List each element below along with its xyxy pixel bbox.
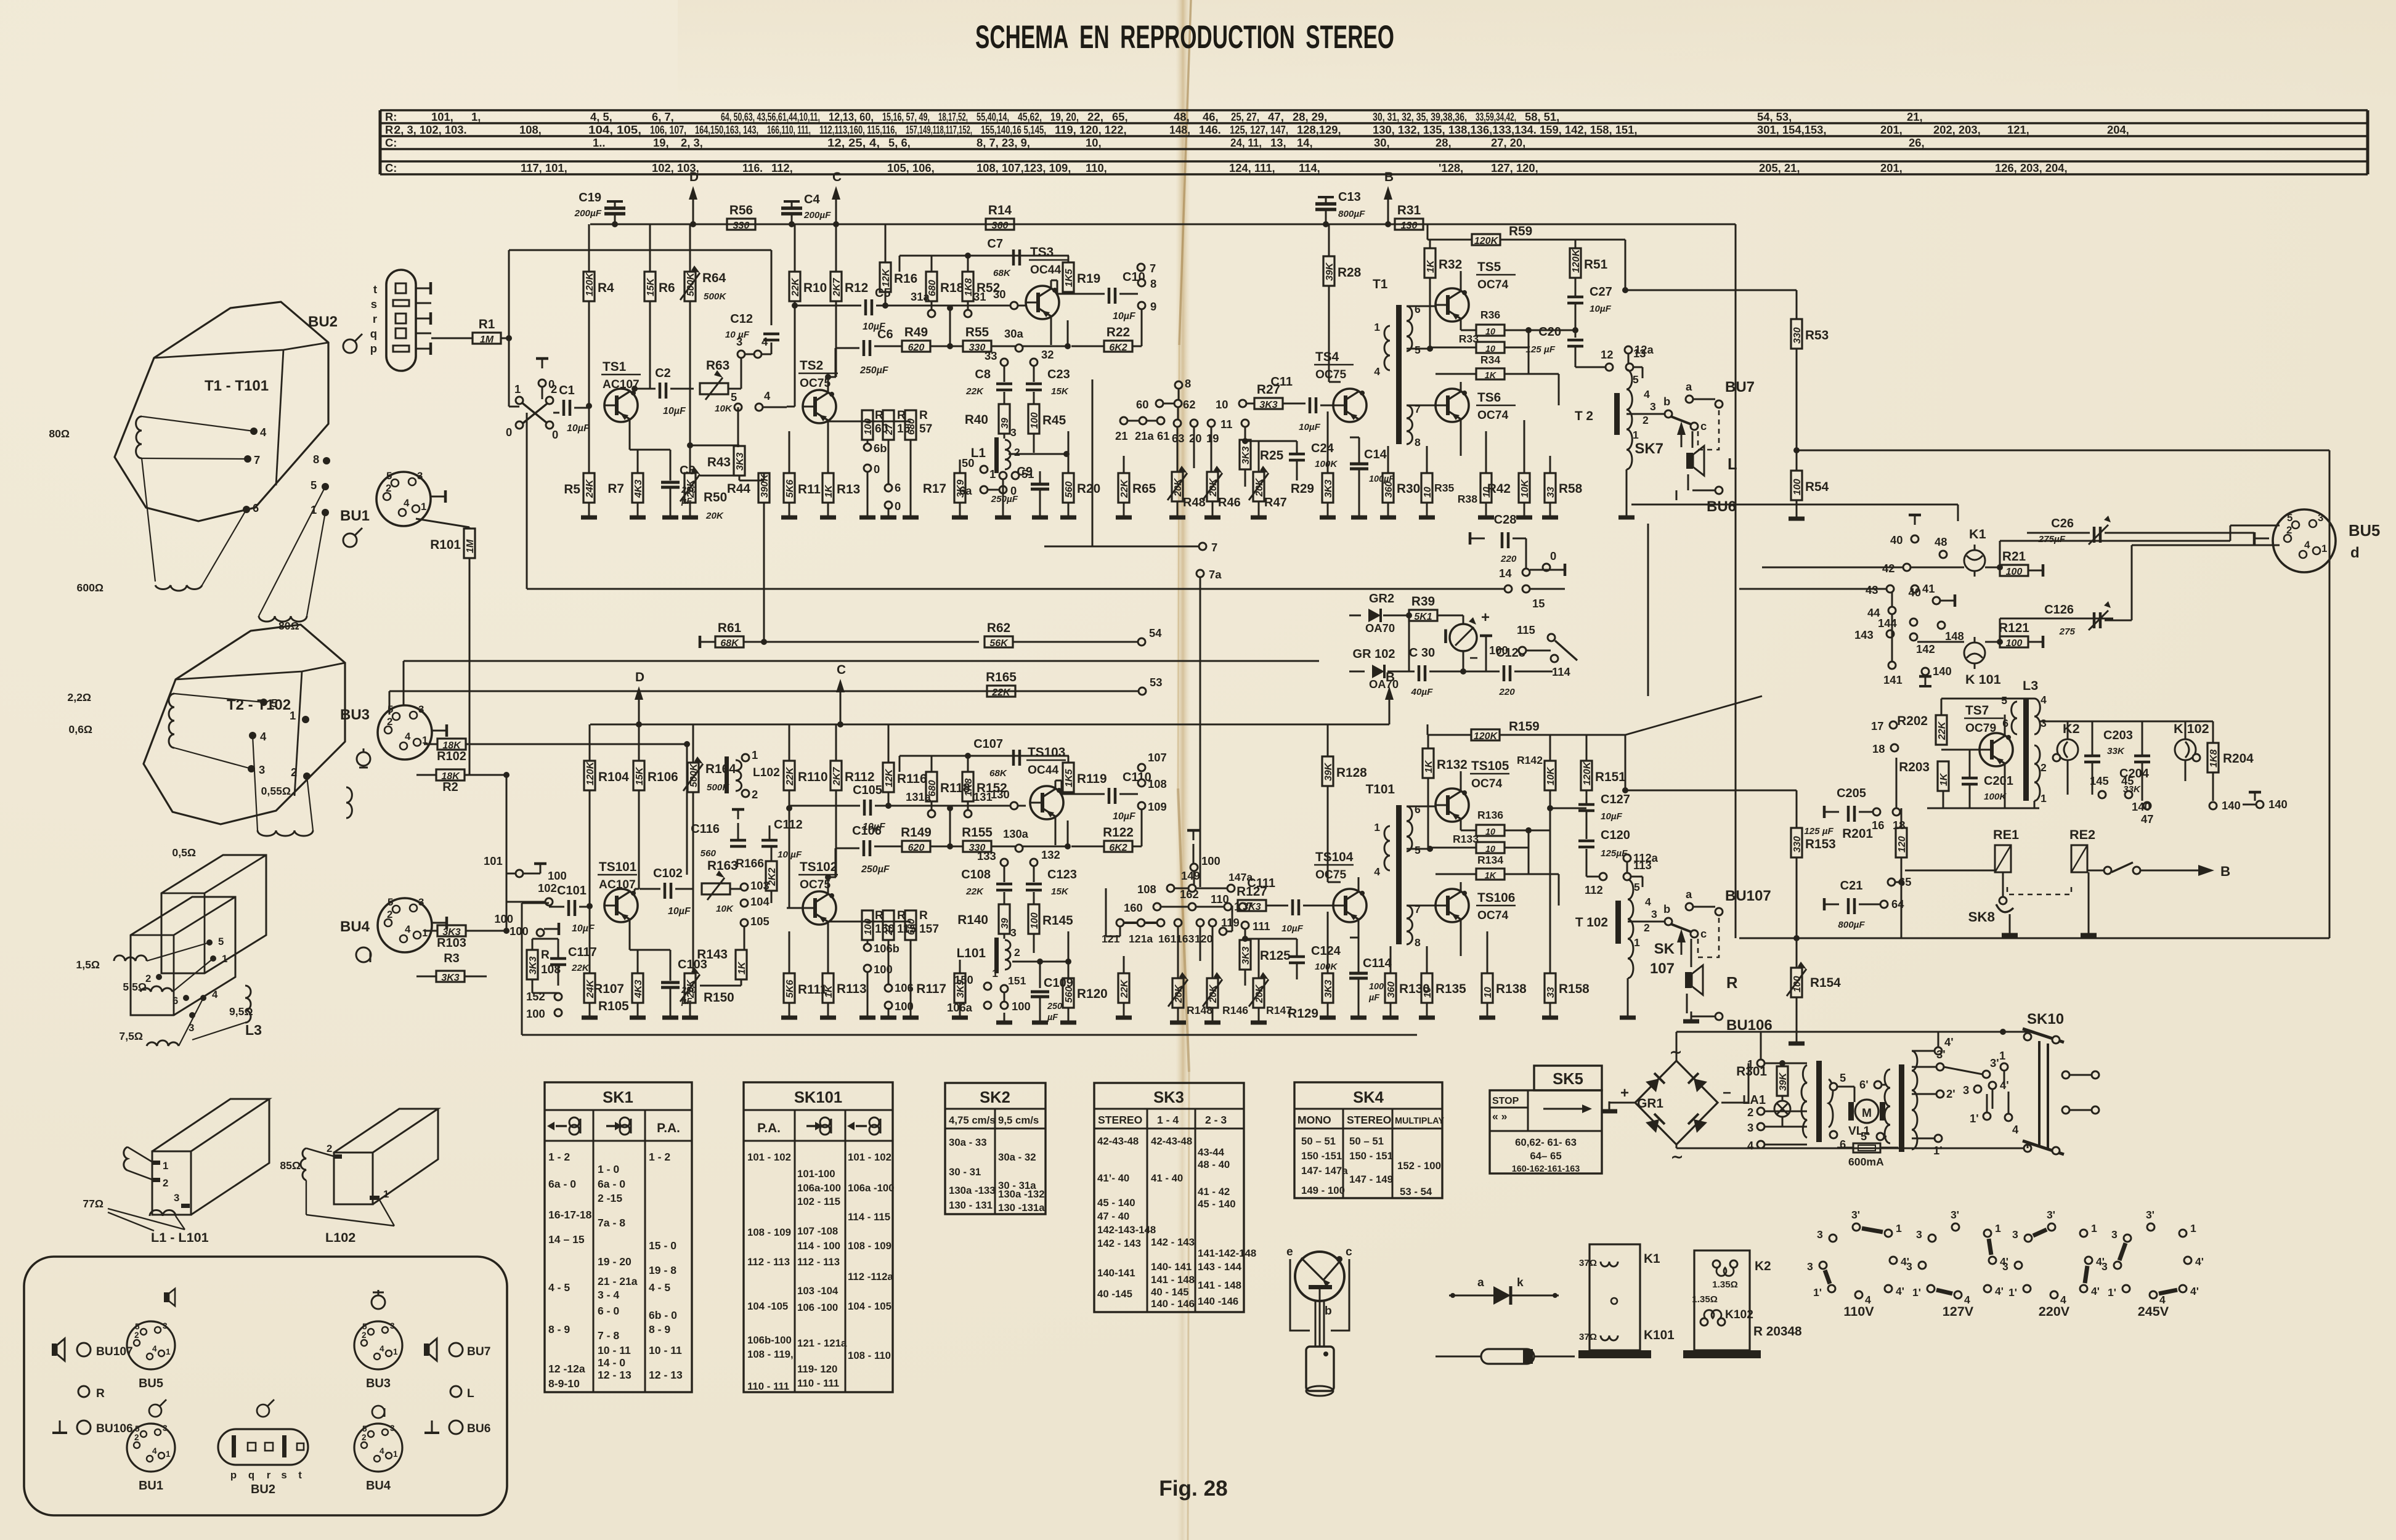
svg-text:152 - 100: 152 - 100 <box>1397 1160 1441 1172</box>
svg-text:C21: C21 <box>1840 879 1863 893</box>
svg-text:R:: R: <box>385 110 397 123</box>
svg-text:6b: 6b <box>874 442 887 455</box>
svg-text:68K: 68K <box>989 768 1007 779</box>
svg-text:33K: 33K <box>2107 746 2125 756</box>
svg-text:107 -108: 107 -108 <box>797 1225 838 1237</box>
svg-text:1: 1 <box>1374 821 1380 833</box>
svg-text:R48: R48 <box>1183 496 1206 509</box>
svg-text:1': 1' <box>2108 1286 2116 1299</box>
svg-text:4: 4 <box>212 989 218 1000</box>
svg-text:R1: R1 <box>479 317 495 331</box>
svg-text:C8: C8 <box>975 368 991 381</box>
svg-text:2: 2 <box>134 1331 139 1340</box>
svg-text:R28: R28 <box>1338 265 1361 280</box>
svg-text:R134: R134 <box>1477 854 1503 866</box>
svg-text:40: 40 <box>1909 586 1921 599</box>
svg-text:112 - 113: 112 - 113 <box>747 1256 790 1268</box>
svg-text:108 - 119,: 108 - 119, <box>747 1348 794 1360</box>
svg-text:2: 2 <box>1747 1106 1753 1119</box>
svg-text:4: 4 <box>1374 365 1380 378</box>
svg-text:R51: R51 <box>1584 257 1607 272</box>
svg-text:1 - 2: 1 - 2 <box>548 1151 570 1163</box>
svg-text:127, 120,: 127, 120, <box>1491 161 1538 174</box>
svg-text:R17: R17 <box>923 482 946 496</box>
svg-text:2: 2 <box>386 482 391 494</box>
svg-text:1..: 1.. <box>593 136 605 149</box>
svg-text:R110: R110 <box>798 770 828 784</box>
svg-text:R32: R32 <box>1439 257 1462 272</box>
svg-text:P.A.: P.A. <box>657 1121 680 1135</box>
svg-text:SK1: SK1 <box>603 1089 633 1106</box>
svg-text:R106: R106 <box>648 770 678 784</box>
svg-text:30a - 33: 30a - 33 <box>949 1137 987 1148</box>
svg-text:106a -100: 106a -100 <box>848 1182 895 1194</box>
svg-text:BU7: BU7 <box>467 1345 490 1358</box>
svg-text:4: 4 <box>1644 388 1650 400</box>
svg-text:R143: R143 <box>697 947 728 962</box>
svg-text:C:: C: <box>385 161 397 174</box>
svg-text:107: 107 <box>1148 751 1167 764</box>
svg-text:C27: C27 <box>1590 285 1612 299</box>
svg-text:K 102: K 102 <box>2174 721 2209 736</box>
svg-text:3: 3 <box>2002 1260 2008 1273</box>
svg-text:42-43-48: 42-43-48 <box>1151 1135 1192 1147</box>
svg-text:147 - 149: 147 - 149 <box>1349 1173 1393 1185</box>
svg-text:R30: R30 <box>1397 482 1420 496</box>
svg-text:142-143-148: 142-143-148 <box>1097 1224 1156 1236</box>
svg-text:3: 3 <box>1650 400 1656 413</box>
svg-text:2 - 3: 2 - 3 <box>1205 1114 1227 1126</box>
svg-text:SK8: SK8 <box>1968 909 1995 925</box>
svg-text:6: 6 <box>895 481 901 494</box>
svg-text:27: 27 <box>884 923 895 936</box>
svg-text:104: 104 <box>750 895 770 908</box>
svg-text:3: 3 <box>418 896 424 908</box>
svg-text:9,5 cm/s: 9,5 cm/s <box>998 1114 1039 1126</box>
svg-text:4: 4 <box>152 1344 157 1353</box>
svg-text:C120: C120 <box>1601 829 1630 842</box>
svg-text:1: 1 <box>752 748 758 761</box>
svg-text:D: D <box>689 170 699 184</box>
svg-text:19,: 19, <box>653 136 669 149</box>
svg-text:45,62,: 45,62, <box>1018 110 1042 123</box>
svg-text:131: 131 <box>973 790 993 803</box>
svg-text:R121: R121 <box>1999 621 2029 635</box>
svg-text:12 - 13: 12 - 13 <box>649 1369 683 1381</box>
svg-text:STEREO: STEREO <box>1098 1114 1142 1126</box>
svg-text:140-141: 140-141 <box>1097 1267 1135 1279</box>
svg-text:48 - 40: 48 - 40 <box>1198 1159 1230 1170</box>
svg-text:10: 10 <box>1485 845 1495 854</box>
svg-text:33: 33 <box>985 349 997 362</box>
svg-text:26,: 26, <box>1909 136 1925 149</box>
svg-text:C2: C2 <box>655 367 671 380</box>
svg-text:120: 120 <box>1195 933 1213 945</box>
svg-text:54: 54 <box>1149 626 1162 639</box>
svg-text:4K3: 4K3 <box>633 980 644 999</box>
svg-text:K102: K102 <box>1725 1308 1753 1321</box>
svg-text:6K2: 6K2 <box>1109 342 1127 353</box>
svg-text:C102: C102 <box>653 867 683 880</box>
svg-text:100: 100 <box>1012 1000 1031 1013</box>
svg-text:R63: R63 <box>706 359 729 373</box>
svg-text:OC74: OC74 <box>1477 409 1508 422</box>
svg-text:101 - 102: 101 - 102 <box>848 1151 891 1163</box>
svg-text:r: r <box>267 1469 271 1481</box>
svg-text:105: 105 <box>750 915 770 928</box>
svg-text:360: 360 <box>992 221 1009 231</box>
svg-text:560: 560 <box>1064 986 1074 1003</box>
svg-text:C201: C201 <box>1984 774 2013 788</box>
svg-text:6: 6 <box>1840 1138 1846 1151</box>
svg-text:108 - 109: 108 - 109 <box>747 1226 791 1238</box>
svg-text:19, 20,: 19, 20, <box>1050 110 1079 123</box>
svg-text:4: 4 <box>761 335 768 348</box>
svg-text:C112: C112 <box>774 818 803 832</box>
svg-text:11: 11 <box>1220 418 1232 431</box>
svg-text:p: p <box>230 1469 237 1481</box>
svg-text:48: 48 <box>1935 535 1947 548</box>
svg-text:C6: C6 <box>877 328 893 341</box>
svg-text:3K3: 3K3 <box>1241 947 1251 965</box>
svg-text:C101: C101 <box>557 884 587 898</box>
svg-text:12, 25, 4,: 12, 25, 4, <box>827 136 880 149</box>
svg-text:5: 5 <box>135 1424 140 1433</box>
svg-text:8-9-10: 8-9-10 <box>548 1377 580 1390</box>
svg-text:108: 108 <box>1137 883 1156 896</box>
svg-text:2: 2 <box>1643 414 1649 426</box>
svg-text:10K: 10K <box>1520 479 1530 498</box>
svg-text:104, 105,: 104, 105, <box>588 123 641 136</box>
svg-text:TS105: TS105 <box>1471 759 1509 773</box>
svg-text:28, 29,: 28, 29, <box>1293 110 1327 123</box>
svg-text:6: 6 <box>1415 303 1421 315</box>
svg-text:7: 7 <box>1211 541 1217 554</box>
svg-text:27, 20,: 27, 20, <box>1491 136 1525 149</box>
svg-text:8: 8 <box>1415 436 1421 448</box>
svg-text:'128,: '128, <box>1439 161 1463 174</box>
svg-text:60: 60 <box>1136 398 1148 411</box>
svg-text:10µF: 10µF <box>1590 304 1612 314</box>
svg-text:R146: R146 <box>1222 1004 1248 1016</box>
svg-text:R105: R105 <box>598 999 629 1013</box>
svg-text:22K: 22K <box>785 766 795 786</box>
svg-text:6: 6 <box>2002 717 2008 729</box>
svg-text:TS104: TS104 <box>1315 850 1354 864</box>
svg-text:OC44: OC44 <box>1028 764 1058 777</box>
svg-text:6b - 0: 6b - 0 <box>649 1309 677 1321</box>
svg-text:µF: µF <box>1047 1013 1058 1023</box>
svg-text:M: M <box>1862 1107 1872 1120</box>
svg-text:1.35Ω: 1.35Ω <box>1692 1294 1718 1305</box>
svg-text:40 -145: 40 -145 <box>1097 1288 1132 1300</box>
svg-text:119, 120, 122,: 119, 120, 122, <box>1055 123 1127 136</box>
svg-text:R21: R21 <box>2002 549 2026 564</box>
svg-text:MONO: MONO <box>1297 1114 1331 1126</box>
svg-text:45: 45 <box>2121 774 2134 787</box>
svg-text:1: 1 <box>383 1188 389 1200</box>
svg-text:OC79: OC79 <box>1965 722 1996 735</box>
svg-text:R166: R166 <box>736 857 764 870</box>
svg-text:BU6: BU6 <box>467 1422 490 1435</box>
svg-text:3: 3 <box>174 1192 179 1204</box>
svg-text:R113: R113 <box>837 982 867 996</box>
svg-text:56K: 56K <box>989 638 1009 649</box>
svg-text:140: 140 <box>1933 665 1952 678</box>
svg-text:101,: 101, <box>431 110 453 123</box>
svg-text:275: 275 <box>2059 626 2076 637</box>
svg-text:1K: 1K <box>1485 871 1497 881</box>
svg-text:TS6: TS6 <box>1477 391 1501 405</box>
svg-text:R: R <box>96 1387 105 1400</box>
svg-text:85Ω: 85Ω <box>280 1159 301 1172</box>
svg-text:5: 5 <box>2287 512 2292 524</box>
svg-text:e: e <box>1286 1246 1293 1258</box>
svg-text:620: 620 <box>908 342 925 353</box>
svg-text:142: 142 <box>1916 642 1935 655</box>
svg-text:30, 31, 32, 35, 39,38,36,: 30, 31, 32, 35, 39,38,36, <box>1373 110 1467 123</box>
svg-text:3': 3' <box>1936 1048 1946 1061</box>
svg-text:6a - 0: 6a - 0 <box>548 1178 576 1190</box>
svg-text:BU2: BU2 <box>251 1483 275 1496</box>
svg-text:30,: 30, <box>1374 136 1390 149</box>
svg-text:R132: R132 <box>1437 758 1468 772</box>
svg-text:14: 14 <box>1499 567 1512 580</box>
svg-text:53: 53 <box>1150 676 1162 689</box>
svg-text:100: 100 <box>510 925 529 938</box>
svg-text:1: 1 <box>290 709 296 722</box>
svg-text:10K: 10K <box>1546 766 1556 785</box>
svg-text:77Ω: 77Ω <box>83 1198 104 1210</box>
svg-text:205, 21,: 205, 21, <box>1759 161 1800 174</box>
svg-text:R203: R203 <box>1899 760 1930 774</box>
svg-text:R154: R154 <box>1810 976 1841 990</box>
svg-text:5K6: 5K6 <box>785 980 795 998</box>
svg-text:B: B <box>1386 670 1395 684</box>
svg-text:43-44: 43-44 <box>1198 1146 1225 1158</box>
svg-text:R120: R120 <box>1077 987 1108 1001</box>
svg-text:116.: 116. <box>742 161 763 174</box>
svg-text:113: 113 <box>1633 859 1652 872</box>
svg-text:B: B <box>1384 170 1394 184</box>
svg-text:64– 65: 64– 65 <box>1530 1150 1561 1162</box>
svg-text:L102: L102 <box>753 766 780 779</box>
svg-text:54, 53,: 54, 53, <box>1757 110 1792 123</box>
svg-text:R153: R153 <box>1805 837 1836 851</box>
svg-text:45 - 140: 45 - 140 <box>1198 1198 1236 1210</box>
svg-text:R128: R128 <box>1336 766 1367 780</box>
svg-text:15: 15 <box>1532 597 1545 610</box>
svg-text:10: 10 <box>1485 827 1495 837</box>
svg-text:620: 620 <box>908 843 925 853</box>
svg-text:143 - 144: 143 - 144 <box>1198 1261 1242 1273</box>
svg-text:10µF: 10µF <box>567 423 590 434</box>
svg-text:BU4: BU4 <box>340 918 370 935</box>
svg-text:4, 5,: 4, 5, <box>590 110 612 123</box>
svg-text:2: 2 <box>2041 761 2047 774</box>
svg-text:121: 121 <box>1102 933 1120 945</box>
svg-text:15K: 15K <box>635 766 645 785</box>
svg-text:C205: C205 <box>1837 787 1866 800</box>
svg-text:40µF: 40µF <box>1411 687 1434 697</box>
svg-text:R158: R158 <box>1559 982 1590 996</box>
svg-text:3: 3 <box>163 1321 168 1331</box>
svg-text:R101: R101 <box>430 538 461 552</box>
svg-text:301, 154,153,: 301, 154,153, <box>1757 123 1827 136</box>
svg-text:C12: C12 <box>730 312 753 326</box>
svg-text:15K: 15K <box>1051 386 1069 397</box>
svg-text:LA1: LA1 <box>1742 1093 1766 1107</box>
svg-text:R142: R142 <box>1517 754 1543 766</box>
svg-text:BU3: BU3 <box>366 1377 391 1390</box>
svg-text:250µF: 250µF <box>859 365 889 376</box>
svg-text:1: 1 <box>421 501 426 513</box>
svg-text:10: 10 <box>1483 987 1493 998</box>
svg-text:10µF: 10µF <box>1281 923 1304 934</box>
svg-text:BU107: BU107 <box>1725 888 1771 904</box>
svg-text:166,110, 111,: 166,110, 111, <box>767 123 811 136</box>
svg-text:120K: 120K <box>1582 761 1593 785</box>
svg-text:3: 3 <box>1963 1084 1969 1096</box>
svg-text:330: 330 <box>1792 836 1803 853</box>
svg-text:10µF: 10µF <box>1299 422 1321 432</box>
svg-text:48,: 48, <box>1174 110 1190 123</box>
svg-text:1: 1 <box>1374 321 1380 333</box>
svg-text:202, 203,: 202, 203, <box>1933 123 1981 136</box>
svg-text:R31: R31 <box>1397 203 1421 217</box>
svg-text:50: 50 <box>962 456 974 469</box>
svg-text:141: 141 <box>1883 673 1903 686</box>
svg-text:100: 100 <box>1792 976 1803 992</box>
svg-text:4: 4 <box>2041 694 2047 706</box>
svg-text:1,5Ω: 1,5Ω <box>76 958 100 971</box>
svg-text:14 - 0: 14 - 0 <box>598 1356 625 1369</box>
svg-text:45 - 140: 45 - 140 <box>1097 1197 1135 1209</box>
svg-text:125 µF: 125 µF <box>1804 826 1834 837</box>
svg-text:330: 330 <box>1792 327 1803 344</box>
svg-text:7: 7 <box>254 453 260 466</box>
svg-text:5: 5 <box>2001 694 2007 707</box>
svg-text:1,: 1, <box>471 110 481 123</box>
svg-text:133: 133 <box>977 849 996 862</box>
svg-text:30 - 31: 30 - 31 <box>949 1166 981 1178</box>
svg-text:140 -146: 140 -146 <box>1198 1295 1238 1307</box>
svg-text:R35: R35 <box>1434 482 1454 494</box>
svg-text:100: 100 <box>1369 982 1384 992</box>
svg-text:3: 3 <box>2111 1228 2118 1241</box>
svg-text:110: 110 <box>1211 893 1229 906</box>
svg-text:0: 0 <box>895 500 901 513</box>
svg-text:200µF: 200µF <box>574 208 602 219</box>
svg-text:10: 10 <box>1423 487 1433 498</box>
svg-text:R201: R201 <box>1842 827 1873 841</box>
svg-text:106b-100: 106b-100 <box>747 1334 792 1346</box>
svg-text:148: 148 <box>1945 630 1964 642</box>
svg-text:3: 3 <box>1747 1121 1753 1134</box>
svg-text:50 – 51: 50 – 51 <box>1301 1135 1336 1147</box>
svg-text:360: 360 <box>1386 981 1397 998</box>
svg-text:32: 32 <box>1041 348 1054 361</box>
svg-text:C116: C116 <box>691 822 720 836</box>
svg-text:R64: R64 <box>702 271 726 285</box>
svg-text:128,129,: 128,129, <box>1297 123 1341 136</box>
svg-text:39K: 39K <box>1323 762 1334 781</box>
svg-text:3: 3 <box>417 470 423 482</box>
svg-text:111: 111 <box>1253 920 1270 933</box>
svg-text:L102: L102 <box>325 1230 355 1245</box>
svg-text:1K5: 1K5 <box>1064 769 1074 787</box>
svg-text:61: 61 <box>1157 429 1169 442</box>
svg-text:7 - 8: 7 - 8 <box>598 1329 619 1342</box>
svg-text:39: 39 <box>1000 418 1010 429</box>
svg-text:∼: ∼ <box>1671 1149 1683 1165</box>
svg-text:−: − <box>1723 1085 1731 1101</box>
svg-text:5: 5 <box>1415 344 1421 356</box>
svg-text:R119: R119 <box>1077 772 1107 786</box>
svg-text:5: 5 <box>386 470 392 482</box>
svg-text:12K: 12K <box>884 768 895 787</box>
svg-text:BU5: BU5 <box>139 1377 163 1390</box>
svg-text:22K: 22K <box>965 386 984 397</box>
svg-text:24K: 24K <box>585 479 595 498</box>
svg-text:220: 220 <box>1498 687 1515 697</box>
svg-text:4: 4 <box>404 497 410 509</box>
svg-text:131a: 131a <box>906 790 932 803</box>
svg-text:108 - 110: 108 - 110 <box>848 1350 891 1361</box>
svg-text:10: 10 <box>1216 398 1228 411</box>
svg-text:2: 2 <box>362 1433 367 1442</box>
svg-text:R135: R135 <box>1436 982 1466 996</box>
svg-text:1: 1 <box>393 1449 398 1459</box>
svg-text:13,: 13, <box>1270 136 1286 149</box>
svg-text:5: 5 <box>731 391 737 403</box>
svg-text:100: 100 <box>548 869 567 882</box>
svg-text:OA70: OA70 <box>1365 622 1395 634</box>
svg-text:K1: K1 <box>1969 526 1986 541</box>
svg-text:112 - 113: 112 - 113 <box>797 1256 840 1268</box>
svg-text:39K: 39K <box>1325 262 1335 281</box>
svg-text:33,59,34,42,: 33,59,34,42, <box>1476 110 1516 123</box>
svg-text:39: 39 <box>1000 918 1010 929</box>
svg-text:R5: R5 <box>564 482 580 496</box>
svg-text:5: 5 <box>388 703 393 715</box>
svg-text:15K: 15K <box>646 277 656 296</box>
svg-text:680: 680 <box>906 918 917 935</box>
svg-text:2': 2' <box>1946 1087 1955 1100</box>
svg-text:65,: 65, <box>1112 110 1128 123</box>
svg-text:155,140,16 5,145,: 155,140,16 5,145, <box>981 123 1046 136</box>
svg-text:10µF: 10µF <box>668 906 691 917</box>
svg-text:105, 106,: 105, 106, <box>887 161 935 174</box>
svg-text:152: 152 <box>526 990 545 1003</box>
svg-text:C105: C105 <box>853 784 882 797</box>
svg-text:330: 330 <box>969 342 986 353</box>
svg-text:390K: 390K <box>760 473 770 498</box>
svg-text:160-162-161-163: 160-162-161-163 <box>1512 1164 1580 1174</box>
svg-text:142 - 143: 142 - 143 <box>1151 1236 1195 1248</box>
svg-text:K1: K1 <box>1644 1252 1660 1266</box>
svg-text:108 - 109: 108 - 109 <box>848 1240 891 1252</box>
svg-text:C126: C126 <box>2044 603 2074 617</box>
svg-text:2: 2 <box>1014 446 1020 458</box>
svg-text:250µF: 250µF <box>991 494 1018 505</box>
svg-text:108: 108 <box>1148 777 1167 790</box>
svg-text:10,: 10, <box>1086 136 1102 149</box>
svg-text:1: 1 <box>2321 543 2327 554</box>
svg-text:TS2: TS2 <box>800 359 823 373</box>
svg-text:148,: 148, <box>1169 123 1190 136</box>
svg-text:3: 3 <box>1807 1260 1813 1273</box>
